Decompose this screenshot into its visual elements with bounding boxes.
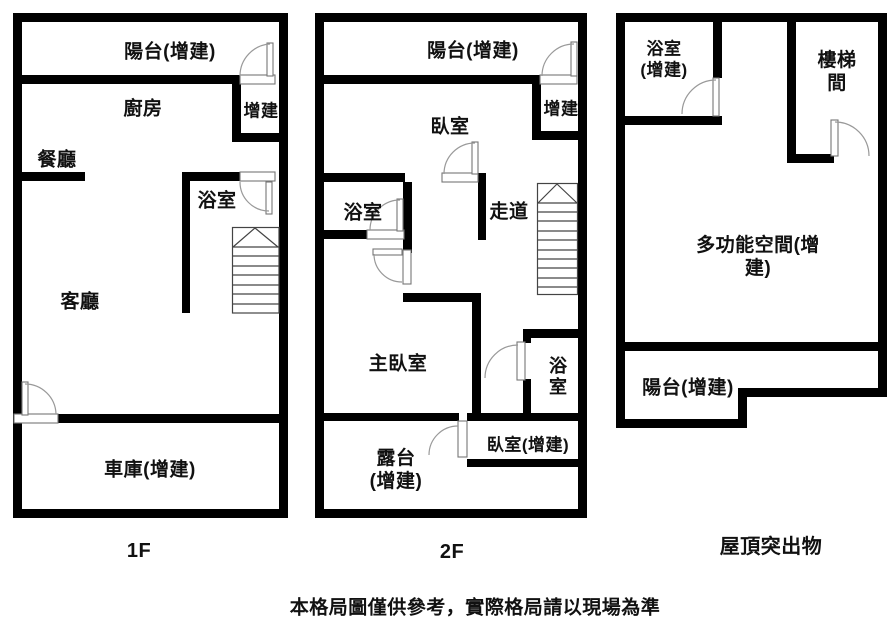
- label-2f-balcony: 陽台(增建): [427, 39, 519, 62]
- stairs-1f-icon: [233, 228, 280, 314]
- floorplan-canvas: 陽台(增建) 廚房 增建 餐廳 浴室 客廳 車庫(增建) 1F 陽台(增建) 臥…: [0, 0, 889, 623]
- label-1f-dining: 餐廳: [37, 148, 76, 171]
- label-2f-hallway: 走道: [489, 200, 528, 223]
- door-2f-bedroom-icon: [442, 142, 478, 182]
- door-1f-bathroom-icon: [240, 172, 275, 214]
- door-roof-bathroom-icon: [682, 78, 719, 116]
- label-1f-garage: 車庫(增建): [104, 458, 196, 481]
- disclaimer-caption: 本格局圖僅供參考，實際格局請以現場為準: [290, 596, 661, 619]
- label-2f-bedroom-addition: 臥室(增建): [487, 436, 569, 457]
- label-1f-balcony: 陽台(增建): [124, 40, 216, 63]
- label-roof-bathroom: 浴室 (增建): [640, 39, 687, 80]
- stairs-2f-icon: [538, 184, 578, 295]
- label-2f-bedroom: 臥室: [430, 115, 469, 138]
- label-1f-living: 客廳: [60, 290, 99, 313]
- label-roof-multipurpose: 多功能空間(增建): [693, 234, 824, 280]
- door-2f-small-bathroom-icon: [485, 342, 525, 380]
- door-2f-bedroom-addition-icon: [429, 421, 467, 457]
- floor-label-1f: 1F: [127, 539, 151, 563]
- door-2f-balcony-icon: [540, 42, 577, 84]
- label-2f-terrace: 露台 (增建): [370, 447, 423, 493]
- door-2f-master-bedroom-icon: [373, 249, 411, 284]
- label-1f-kitchen: 廚房: [123, 97, 162, 120]
- floorplan-drawing: [0, 0, 889, 623]
- label-2f-master-bedroom: 主臥室: [369, 352, 428, 375]
- label-roof-balcony: 陽台(增建): [642, 376, 734, 399]
- label-2f-bathroom: 浴室: [343, 201, 382, 224]
- label-1f-addition: 增建: [244, 102, 279, 123]
- label-2f-small-bathroom: 浴室: [545, 356, 567, 398]
- label-2f-addition: 增建: [544, 100, 579, 121]
- label-roof-stairwell: 樓梯間: [811, 49, 863, 95]
- floor-label-2f: 2F: [440, 540, 464, 564]
- label-1f-bathroom: 浴室: [197, 189, 236, 212]
- floor-label-roof: 屋頂突出物: [720, 535, 823, 559]
- door-roof-stairwell-icon: [831, 120, 869, 156]
- door-1f-balcony-icon: [240, 43, 275, 84]
